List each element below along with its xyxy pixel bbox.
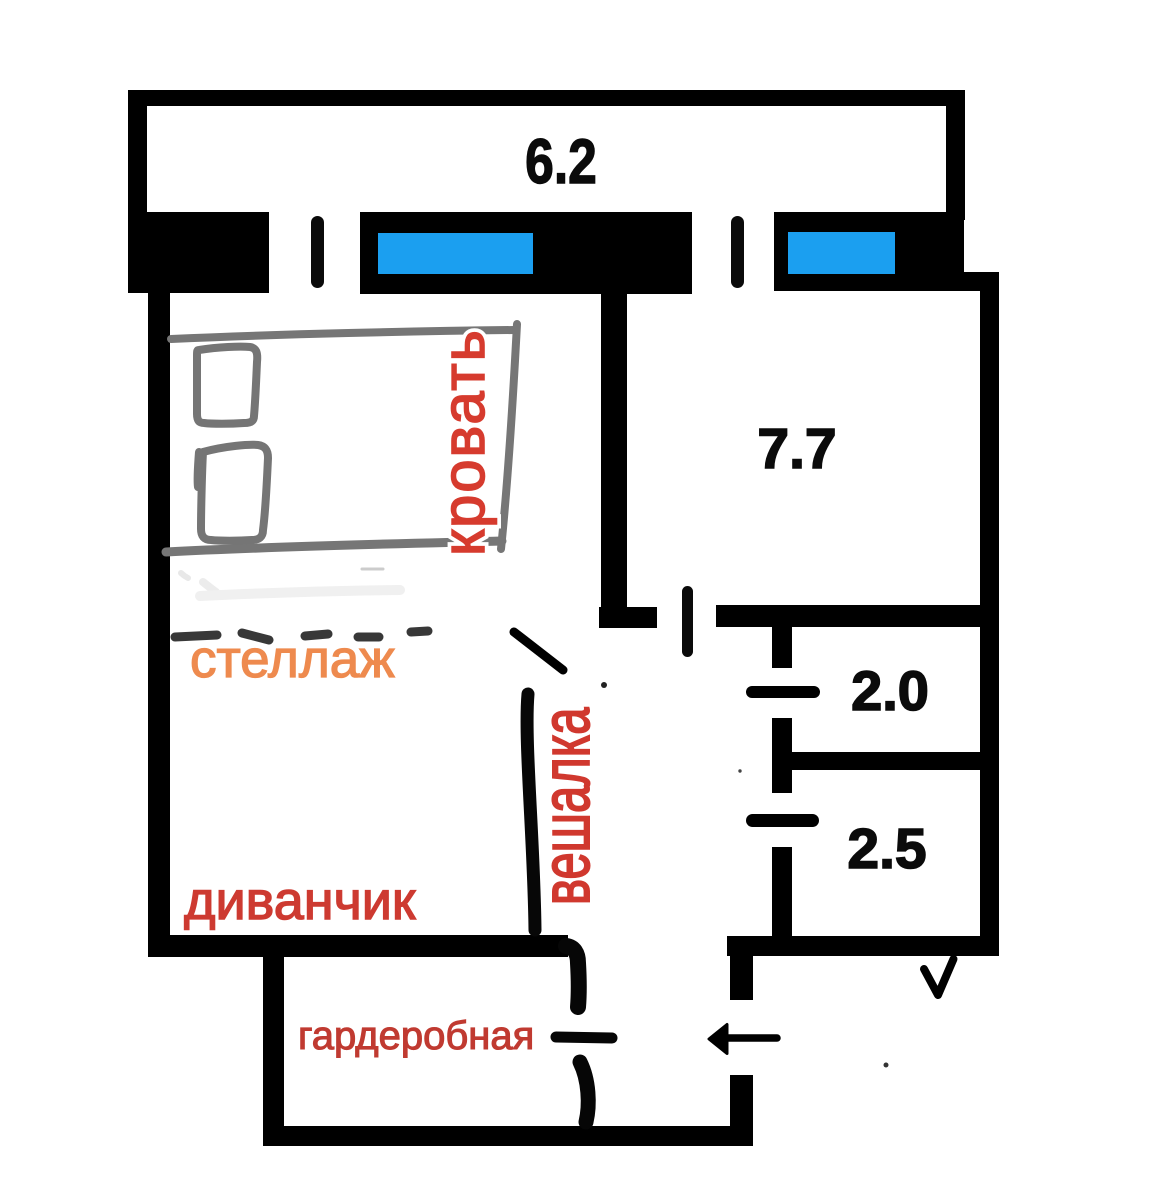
svg-text:гардеробная: гардеробная xyxy=(298,1014,534,1058)
svg-text:6.2: 6.2 xyxy=(525,127,597,197)
svg-text:диванчик: диванчик xyxy=(184,871,416,931)
svg-text:2.5: 2.5 xyxy=(847,817,926,881)
svg-text:вешалка: вешалка xyxy=(527,708,604,905)
svg-text:2.0: 2.0 xyxy=(851,659,929,722)
svg-text:7.7: 7.7 xyxy=(757,417,836,481)
svg-text:стеллаж: стеллаж xyxy=(190,630,395,689)
svg-text:кровать: кровать xyxy=(430,328,497,556)
